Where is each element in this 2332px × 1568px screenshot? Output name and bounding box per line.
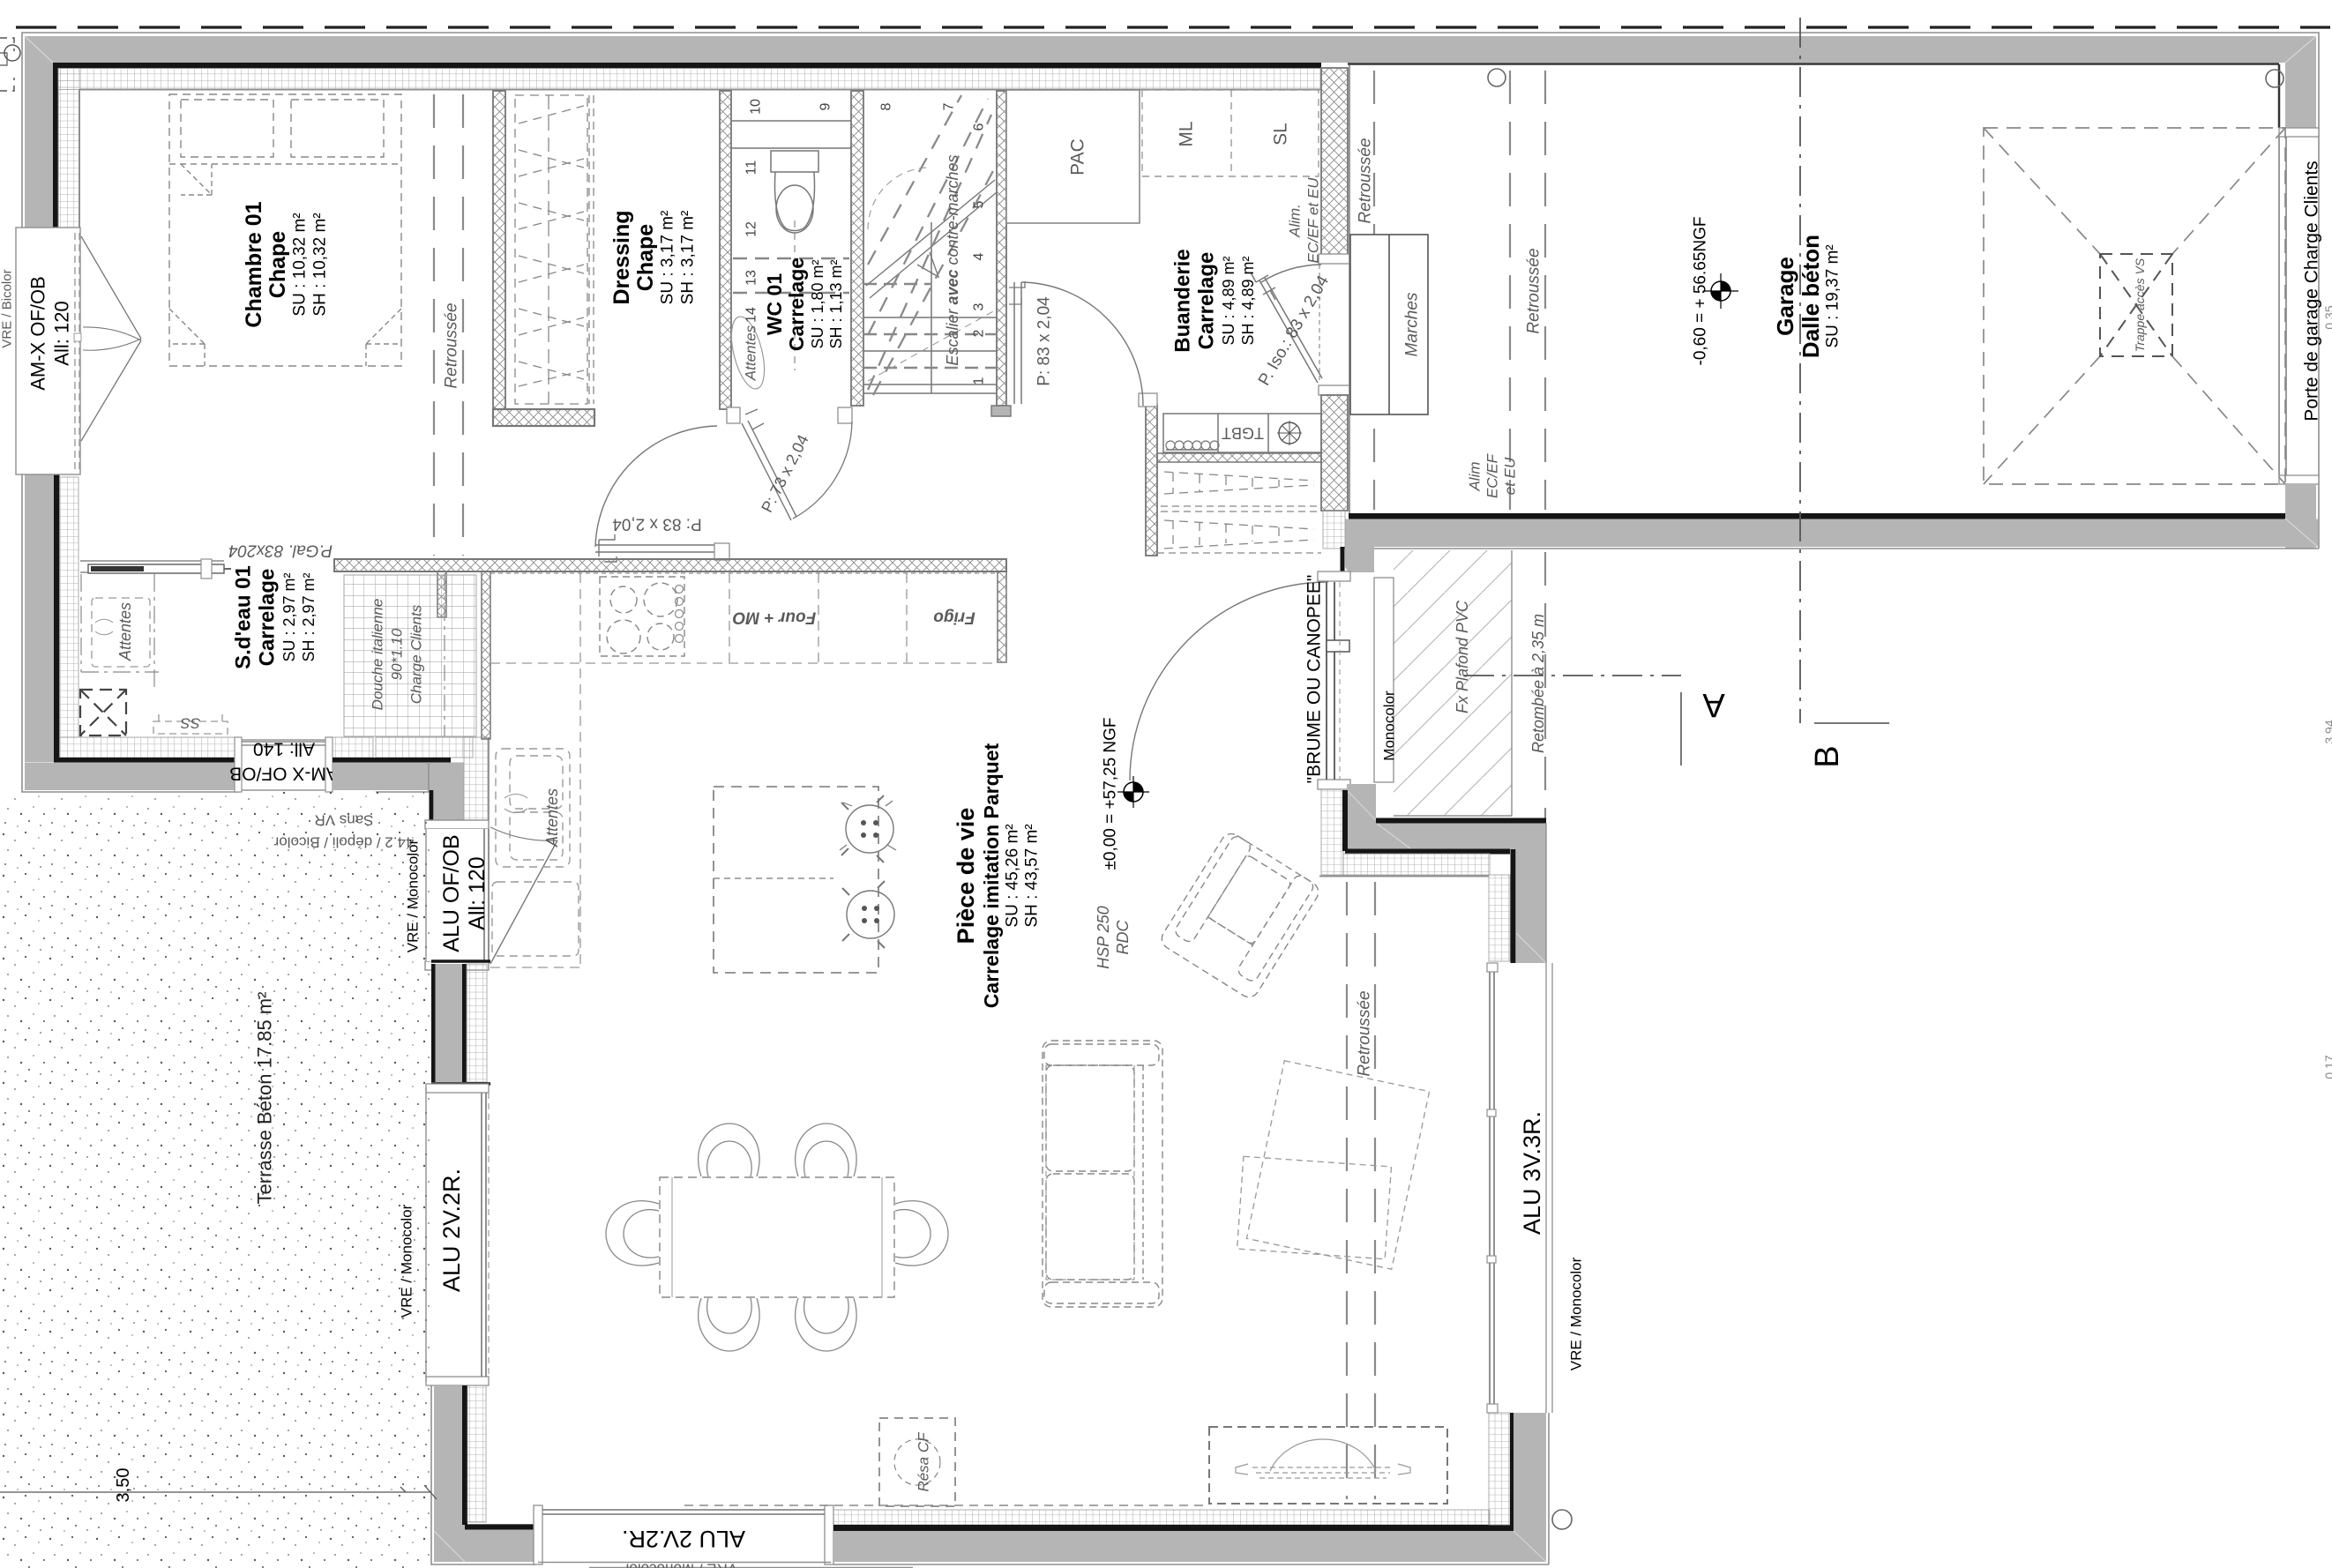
svg-text:Chape: Chape (265, 231, 290, 299)
svg-text:TGBT: TGBT (1222, 424, 1264, 442)
svg-text:AM-X OF/OB: AM-X OF/OB (229, 764, 339, 784)
svg-text:All: 120: All: 120 (51, 301, 73, 365)
svg-text:SU : 4,89 m²: SU : 4,89 m² (1220, 256, 1237, 345)
svg-text:P: 83 x 2,04: P: 83 x 2,04 (1035, 296, 1054, 386)
svg-text:1: 1 (972, 377, 987, 385)
svg-text:Escalier avec contre-marches: Escalier avec contre-marches (944, 154, 961, 365)
svg-text:11: 11 (744, 161, 759, 175)
svg-text:Dressing: Dressing (609, 211, 634, 305)
svg-text:SH : 1,13 m²: SH : 1,13 m² (827, 259, 845, 348)
svg-text:All: 120: All: 120 (465, 856, 490, 930)
svg-text:AM-X OF/OB: AM-X OF/OB (27, 276, 49, 391)
svg-text:ALU 2V.2R.: ALU 2V.2R. (438, 1169, 465, 1292)
svg-text:EC/EF et EU: EC/EF et EU (1305, 177, 1322, 264)
svg-text:Charge Clients: Charge Clients (408, 604, 425, 704)
svg-text:±0,00 = +57,25 NGF: ±0,00 = +57,25 NGF (1102, 717, 1120, 870)
svg-text:Four + MO: Four + MO (733, 609, 817, 627)
svg-text:Carrelage: Carrelage (785, 258, 808, 351)
svg-text:90*1.10: 90*1.10 (389, 628, 406, 680)
svg-text:SU : 10,32 m²: SU : 10,32 m² (291, 213, 310, 316)
svg-text:6: 6 (972, 123, 987, 131)
svg-text:SU : 2,97 m²: SU : 2,97 m² (280, 572, 298, 661)
svg-text:PAC: PAC (1068, 138, 1088, 175)
svg-text:VRE / Monocolor: VRE / Monocolor (1568, 1257, 1585, 1370)
svg-text:14: 14 (744, 307, 759, 323)
svg-text:Retroussée: Retroussée (1525, 248, 1543, 333)
svg-text:SH : 10,32 m²: SH : 10,32 m² (311, 213, 330, 316)
svg-text:0,17: 0,17 (2322, 1055, 2332, 1079)
svg-text:ALU 3V.3R.: ALU 3V.3R. (1519, 1111, 1545, 1235)
svg-text:P.Gal. 83x204: P.Gal. 83x204 (228, 541, 333, 560)
svg-text:Garage: Garage (1772, 257, 1798, 336)
svg-text:Chape: Chape (633, 224, 658, 292)
svg-text:Attentes: Attentes (743, 325, 759, 381)
svg-text:3: 3 (972, 302, 987, 310)
svg-text:SL: SL (1271, 123, 1291, 146)
svg-text:Retroussée: Retroussée (1356, 990, 1374, 1076)
svg-text:SH : 4,89 m²: SH : 4,89 m² (1239, 256, 1257, 345)
svg-text:Trappe accès VS: Trappe accès VS (2133, 258, 2147, 352)
svg-text:-0,60 = + 56.65NGF: -0,60 = + 56.65NGF (1692, 217, 1710, 366)
svg-text:2: 2 (972, 329, 987, 337)
svg-text:Marches: Marches (1403, 292, 1422, 356)
svg-text:Alim.: Alim. (1287, 204, 1304, 238)
svg-text:Résa CF: Résa CF (916, 1431, 932, 1492)
svg-text:EC/EF: EC/EF (1484, 452, 1501, 498)
svg-text:SU : 19,37 m²: SU : 19,37 m² (1824, 244, 1842, 347)
svg-text:10: 10 (749, 99, 764, 115)
svg-text:HSP 250: HSP 250 (1095, 906, 1112, 968)
svg-text:3,94: 3,94 (2322, 720, 2332, 743)
svg-text:P: 83 x 2,04: P: 83 x 2,04 (612, 515, 702, 534)
svg-text:5: 5 (972, 200, 987, 208)
svg-text:SU : 45,26 m²: SU : 45,26 m² (1004, 824, 1022, 927)
svg-text:S.d'eau 01: S.d'eau 01 (232, 565, 256, 669)
svg-text:Retombée à 2,35 m: Retombée à 2,35 m (1529, 614, 1547, 753)
svg-text:Frigo: Frigo (933, 609, 975, 627)
svg-text:SH : 43,57 m²: SH : 43,57 m² (1023, 824, 1042, 927)
svg-text:Terrasse Béton 17.85 m²: Terrasse Béton 17.85 m² (254, 992, 276, 1205)
svg-text:WC 01: WC 01 (763, 273, 786, 336)
svg-text:7: 7 (942, 102, 957, 110)
svg-text:Chambre 01: Chambre 01 (242, 201, 266, 327)
svg-text:Porte de garage Charge Clients: Porte de garage Charge Clients (2302, 161, 2322, 421)
svg-text:Douche italienne: Douche italienne (370, 599, 386, 711)
svg-text:Fx Plafond PVC: Fx Plafond PVC (1454, 600, 1471, 713)
svg-text:Carrelage imitation Parquet: Carrelage imitation Parquet (980, 743, 1003, 1008)
svg-text:VRE / Bicolor: VRE / Bicolor (0, 269, 15, 347)
svg-text:A: A (1702, 686, 1725, 723)
svg-text:"BRUME OU CANOPEE": "BRUME OU CANOPEE" (1304, 575, 1325, 784)
svg-text:3,50: 3,50 (114, 1468, 133, 1503)
svg-text:Retroussée: Retroussée (1357, 138, 1375, 223)
svg-text:ML: ML (1177, 121, 1197, 146)
svg-text:VRE / Monocolor: VRE / Monocolor (624, 1561, 737, 1568)
svg-text:Carrelage: Carrelage (1195, 252, 1219, 350)
svg-text:ALU OF/OB: ALU OF/OB (439, 834, 464, 952)
svg-text:Alim: Alim (1467, 461, 1484, 491)
svg-text:et EU: et EU (1502, 457, 1519, 495)
svg-text:4: 4 (972, 252, 987, 260)
svg-text:Pièce de vie: Pièce de vie (953, 808, 979, 945)
svg-text:Carrelage: Carrelage (256, 569, 280, 667)
svg-text:SS: SS (180, 715, 200, 732)
svg-text:Retroussée: Retroussée (443, 302, 461, 388)
svg-text:Dalle béton: Dalle béton (1798, 235, 1824, 358)
svg-text:All: 140: All: 140 (253, 739, 315, 759)
svg-text:12: 12 (744, 221, 759, 237)
svg-text:B: B (1809, 745, 1846, 767)
svg-text:Monocolor: Monocolor (1381, 691, 1398, 761)
svg-text:SU : 1,80 m²: SU : 1,80 m² (809, 259, 826, 348)
svg-text:Attentes: Attentes (543, 788, 561, 847)
svg-text:SU : 3,17 m²: SU : 3,17 m² (659, 211, 677, 305)
svg-text:0,35: 0,35 (2322, 305, 2332, 329)
svg-text:ALU 2V.2R.: ALU 2V.2R. (622, 1526, 745, 1552)
svg-text:SH : 2,97 m²: SH : 2,97 m² (300, 572, 318, 661)
svg-text:Buanderie: Buanderie (1171, 249, 1195, 352)
svg-text:13: 13 (744, 270, 759, 286)
svg-text:8: 8 (879, 102, 894, 110)
svg-text:RDC: RDC (1114, 920, 1132, 955)
svg-text:Attentes: Attentes (116, 602, 134, 661)
svg-text:SH : 3,17 m²: SH : 3,17 m² (679, 211, 698, 305)
svg-text:9: 9 (818, 102, 833, 110)
